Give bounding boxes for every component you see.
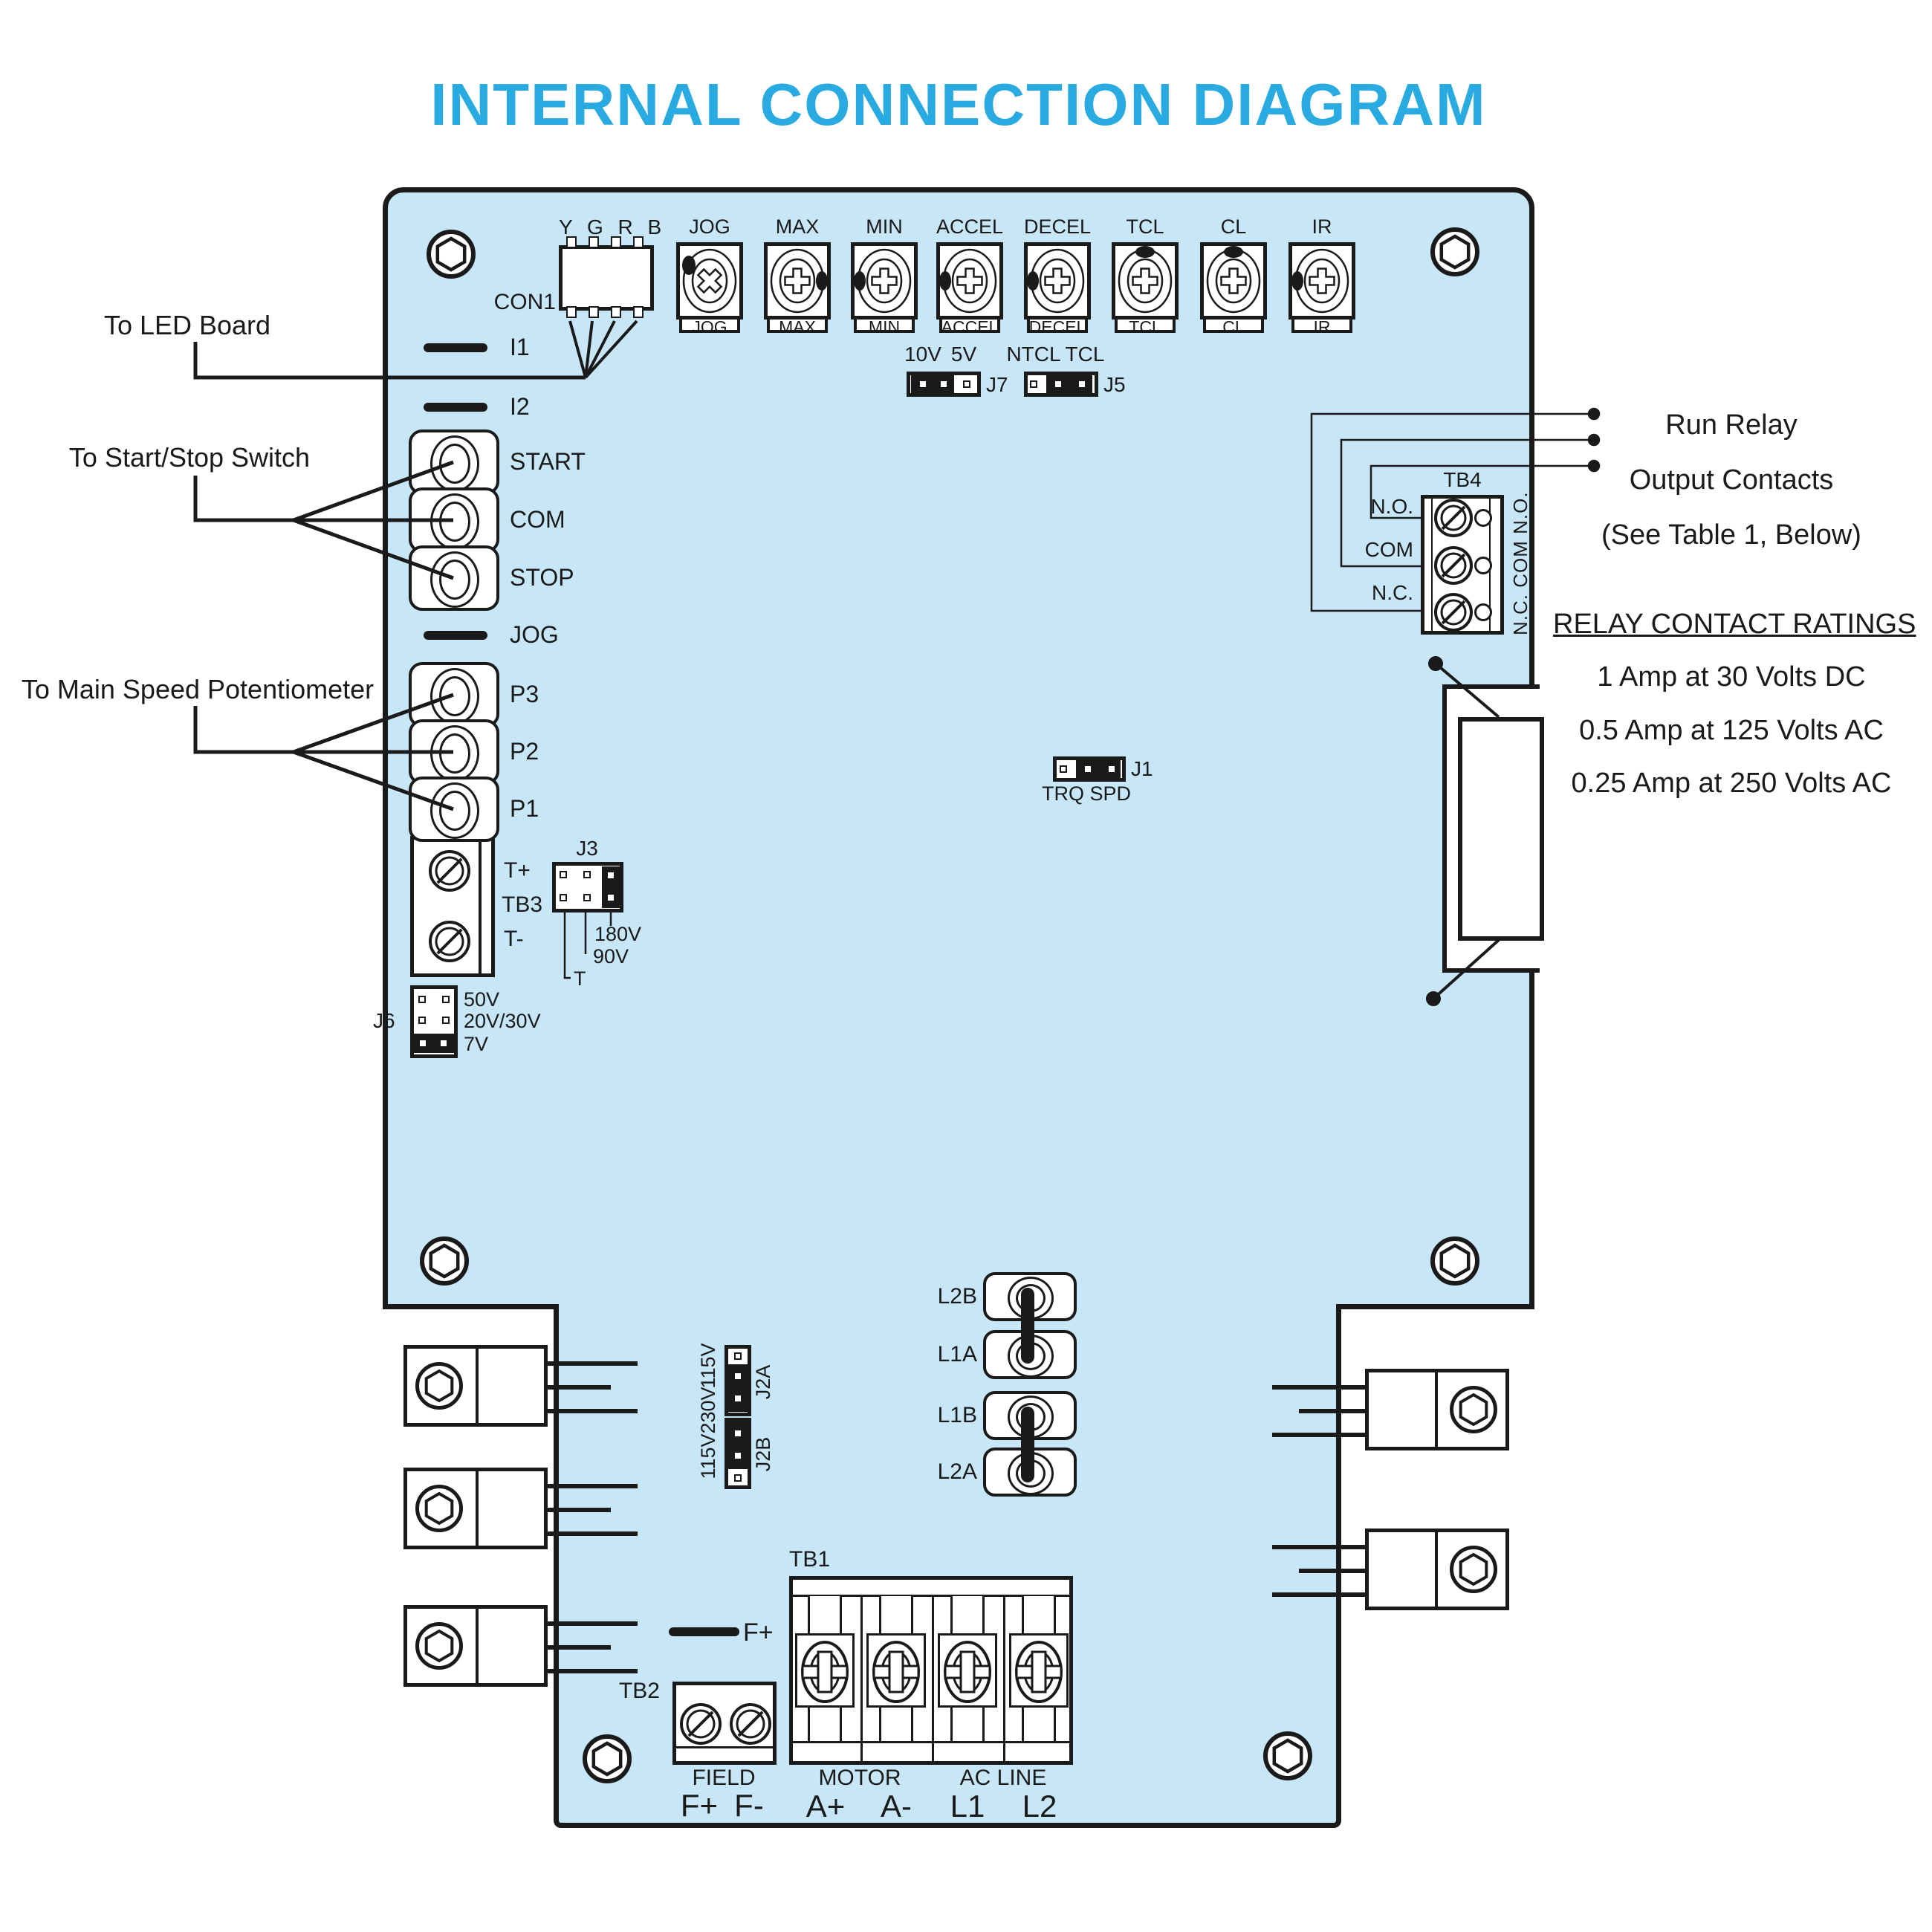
tb4-side-text: N.C. COM N.O. <box>1510 494 1531 635</box>
pot-bottom-label: IR <box>1288 318 1355 337</box>
transistor-bolt-icon <box>415 1622 463 1670</box>
j6-label: J6 <box>373 1009 395 1032</box>
run-relay-line2: Output Contacts <box>1553 464 1910 496</box>
pot-top-label: CL <box>1200 215 1267 238</box>
field-label: FIELD <box>679 1766 768 1791</box>
mounting-bolt-icon <box>1430 1236 1479 1286</box>
tb1-screw-icon <box>869 1637 924 1707</box>
to-main-speed-text: To Main Speed Potentiometer <box>19 675 376 704</box>
tb1-screw-icon <box>1011 1637 1066 1707</box>
p3-terminal <box>409 662 499 727</box>
i1-trace <box>424 343 487 352</box>
relay-ratings-title: RELAY CONTACT RATINGS <box>1553 609 1910 641</box>
aminus-label: A- <box>866 1789 926 1824</box>
p1-label: P1 <box>510 796 539 823</box>
j6-option-20v30v: 20V/30V <box>464 1010 541 1032</box>
pot-jog: JOGJOG <box>676 215 743 339</box>
pot-decel: DECELDECEL <box>1024 215 1091 339</box>
motor-group-label: MOTOR <box>800 1766 919 1791</box>
tb1-cell-tab <box>950 1708 985 1741</box>
pot-body <box>1112 242 1179 320</box>
stop-terminal <box>409 545 499 611</box>
pot-top-label: JOG <box>676 215 743 238</box>
fuse-label: L2B <box>903 1284 977 1309</box>
pot-tcl: TCLTCL <box>1112 215 1179 339</box>
tb4-no-label: N.O. <box>1332 495 1413 518</box>
pot-body <box>764 242 831 320</box>
j3-label: J3 <box>568 837 606 860</box>
tb4-wire-hole <box>1474 603 1492 621</box>
transistor-bolt-icon <box>1450 1386 1497 1433</box>
pot-ir: IRIR <box>1288 215 1355 339</box>
relay-rating-1: 1 Amp at 30 Volts DC <box>1553 661 1910 693</box>
tb1-cell-body <box>938 1633 997 1708</box>
screw-icon <box>678 1702 723 1746</box>
pot-top-label: MAX <box>764 215 831 238</box>
tb1-cell-body <box>866 1633 926 1708</box>
tb1-label: TB1 <box>789 1547 830 1572</box>
pot-body <box>851 242 918 320</box>
acline-group-label: AC LINE <box>944 1766 1063 1791</box>
tb1-cell-tab <box>879 1596 913 1633</box>
j5-option-ntcl: NTCL <box>1004 343 1063 366</box>
j2a-label: J2A <box>752 1345 773 1419</box>
tb1-cell-tab <box>808 1596 842 1633</box>
run-relay-line3: (See Table 1, Below) <box>1553 519 1910 551</box>
terminal-ring-inner <box>439 560 470 600</box>
p2-terminal <box>409 719 499 785</box>
tb1-cell-tab <box>879 1708 913 1741</box>
pot-body <box>936 242 1003 320</box>
fuse-link-bar <box>1021 1288 1034 1364</box>
screw-icon <box>1433 497 1474 539</box>
tb4-wire-hole <box>1474 557 1492 574</box>
pot-bottom-label: ACCEL <box>936 318 1003 337</box>
tb1-screw-icon <box>797 1637 852 1707</box>
fuse-label: L1A <box>903 1342 977 1367</box>
start-label: START <box>510 449 586 476</box>
pot-bottom-label: MIN <box>851 318 918 337</box>
tb3-name-label: TB3 <box>502 892 542 918</box>
i2-label: I2 <box>510 394 530 421</box>
tb1-cell-tab <box>808 1708 842 1741</box>
screw-icon <box>728 1702 773 1746</box>
mounting-bolt-icon <box>583 1734 632 1783</box>
j3-option-90v: 90V <box>593 945 629 967</box>
terminal-ring-inner <box>439 676 470 716</box>
to-led-board-text: To LED Board <box>46 311 328 340</box>
pot-body <box>1200 242 1267 320</box>
pot-bottom-label: JOG <box>676 318 743 337</box>
page-title: INTERNAL CONNECTION DIAGRAM <box>297 71 1620 138</box>
tb1-cell-tab <box>950 1596 985 1633</box>
pot-bottom-label: TCL <box>1112 318 1179 337</box>
con1-connector <box>559 245 654 311</box>
tb4-com-label: COM <box>1332 538 1413 561</box>
con1-pin-letters: Y G R B <box>559 215 654 239</box>
transistor-bolt-icon <box>415 1362 463 1410</box>
pot-max: MAXMAX <box>764 215 831 339</box>
fuse-label: L2A <box>903 1459 977 1485</box>
screw-icon <box>427 919 472 964</box>
j7-label: J7 <box>986 373 1008 396</box>
fuse-link-bar <box>1021 1407 1034 1482</box>
pot-body <box>1024 242 1091 320</box>
j1-label: J1 <box>1131 757 1153 780</box>
relay-rating-2: 0.5 Amp at 125 Volts AC <box>1553 715 1910 747</box>
terminal-ring-inner <box>439 791 470 831</box>
screw-icon <box>427 849 472 893</box>
pot-top-label: IR <box>1288 215 1355 238</box>
mounting-bolt-icon <box>427 230 476 279</box>
tb1-cell-tab <box>1022 1708 1056 1741</box>
pot-top-label: TCL <box>1112 215 1179 238</box>
tb4-nc-label: N.C. <box>1332 581 1413 604</box>
j2-voltage-115v-bottom: 115V <box>697 1419 718 1494</box>
j1-sublabel: TRQ SPD <box>1038 782 1135 805</box>
mounting-bolt-icon <box>1263 1731 1312 1780</box>
j6-option-7v: 7V <box>464 1033 488 1055</box>
pot-cl: CLCL <box>1200 215 1267 339</box>
tb4-wire-hole <box>1474 509 1492 527</box>
stop-label: STOP <box>510 565 574 591</box>
pot-min: MINMIN <box>851 215 918 339</box>
fuse-label: L1B <box>903 1403 977 1428</box>
tb1-cell-tab <box>1022 1596 1056 1633</box>
edge-connector <box>1458 717 1544 941</box>
j2b-label: J2B <box>752 1417 773 1491</box>
tb3-divider <box>479 840 482 973</box>
transistor-bolt-icon <box>415 1485 463 1532</box>
fminus-label: F- <box>719 1788 779 1823</box>
to-start-stop-text: To Start/Stop Switch <box>26 443 353 473</box>
con1-label: CON1 <box>444 290 556 315</box>
com-label: COM <box>510 507 565 534</box>
p2-label: P2 <box>510 739 539 765</box>
com-terminal <box>409 487 499 553</box>
p3-label: P3 <box>510 681 539 708</box>
tb1-screw-icon <box>940 1637 995 1707</box>
fplus-mid-label: F+ <box>743 1618 774 1647</box>
tb3-tplus-label: T+ <box>504 858 531 884</box>
jog-trace <box>424 631 487 640</box>
internal-connection-diagram: INTERNAL CONNECTION DIAGRAM CON1 Y G R B… <box>0 0 1932 1932</box>
pot-top-label: ACCEL <box>936 215 1003 238</box>
pot-body <box>1288 242 1355 320</box>
pot-top-label: DECEL <box>1024 215 1091 238</box>
pot-accel: ACCELACCEL <box>936 215 1003 339</box>
i2-trace <box>424 403 487 412</box>
l2-label: L2 <box>1010 1789 1069 1824</box>
fplus-trace <box>669 1627 739 1636</box>
tb1-cell-body <box>795 1633 855 1708</box>
p1-terminal <box>409 777 499 842</box>
pot-top-label: MIN <box>851 215 918 238</box>
l1-label: L1 <box>938 1789 997 1824</box>
relay-rating-3: 0.25 Amp at 250 Volts AC <box>1553 768 1910 800</box>
terminal-ring-inner <box>439 502 470 542</box>
pot-bottom-label: CL <box>1200 318 1267 337</box>
j7-option-5v: 5V <box>941 343 986 366</box>
terminal-ring-inner <box>439 733 470 774</box>
j5-label: J5 <box>1103 373 1126 396</box>
pot-body <box>676 242 743 320</box>
screw-icon <box>1433 591 1474 633</box>
mounting-bolt-icon <box>1430 227 1479 276</box>
transistor-bolt-icon <box>1450 1546 1497 1593</box>
tb3-tminus-label: T- <box>504 927 524 952</box>
terminal-ring-inner <box>439 444 470 484</box>
tb1-cell-body <box>1009 1633 1069 1708</box>
j3-option-t: T <box>574 967 586 990</box>
pot-bottom-label: DECEL <box>1024 318 1091 337</box>
aplus-label: A+ <box>796 1789 855 1824</box>
pot-bottom-label: MAX <box>764 318 831 337</box>
tb2-label: TB2 <box>586 1679 660 1704</box>
j6-option-50v: 50V <box>464 988 499 1011</box>
run-relay-line1: Run Relay <box>1553 409 1910 441</box>
start-terminal <box>409 429 499 495</box>
j5-option-tcl: TCL <box>1059 343 1111 366</box>
i1-label: I1 <box>510 334 530 361</box>
j3-option-180v: 180V <box>594 923 641 945</box>
screw-icon <box>1433 545 1474 586</box>
jog-terminal-label: JOG <box>510 622 559 649</box>
tb4-label: TB4 <box>1425 468 1500 491</box>
mounting-bolt-icon <box>420 1236 469 1286</box>
